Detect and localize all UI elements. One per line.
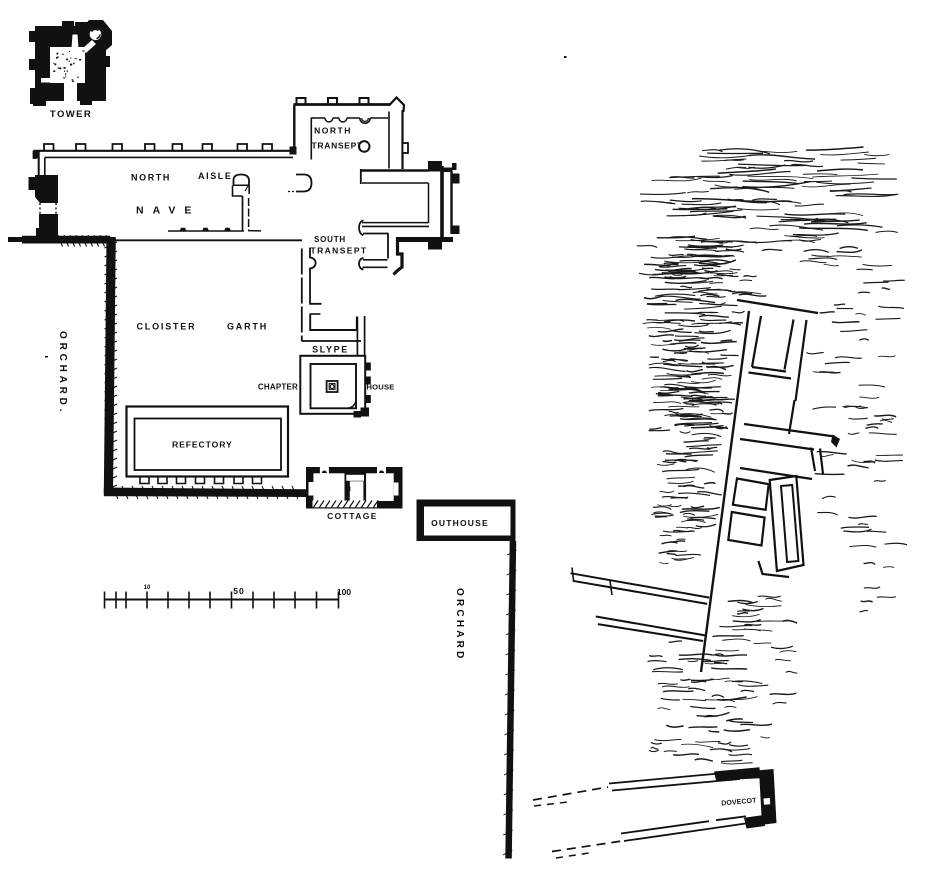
svg-text:10: 10 (144, 585, 151, 591)
svg-text:SOUTH: SOUTH (314, 235, 346, 244)
svg-text:TRANSEPT: TRANSEPT (311, 246, 368, 256)
svg-text:REFECTORY: REFECTORY (172, 440, 233, 450)
svg-text:NORTH: NORTH (131, 173, 171, 183)
svg-text:HOUSE: HOUSE (367, 383, 395, 392)
svg-text:AISLE: AISLE (198, 171, 233, 181)
svg-text:100: 100 (337, 587, 351, 597)
svg-text:ORCHARD.: ORCHARD. (57, 331, 68, 415)
svg-text:NORTH: NORTH (314, 126, 352, 136)
svg-text:GARTH: GARTH (227, 322, 268, 332)
svg-text:COTTAGE: COTTAGE (327, 511, 378, 521)
svg-text:50: 50 (233, 586, 244, 596)
svg-text:ORCHARD: ORCHARD (454, 588, 465, 662)
svg-text:TOWER: TOWER (50, 109, 92, 120)
svg-text:SLYPE: SLYPE (312, 345, 349, 355)
svg-text:NAVE: NAVE (136, 205, 200, 217)
svg-text:TRANSEPT: TRANSEPT (312, 141, 364, 151)
svg-text:CLOISTER: CLOISTER (137, 322, 197, 332)
svg-text:CHAPTER: CHAPTER (258, 383, 298, 392)
svg-text:OUTHOUSE: OUTHOUSE (431, 518, 489, 528)
